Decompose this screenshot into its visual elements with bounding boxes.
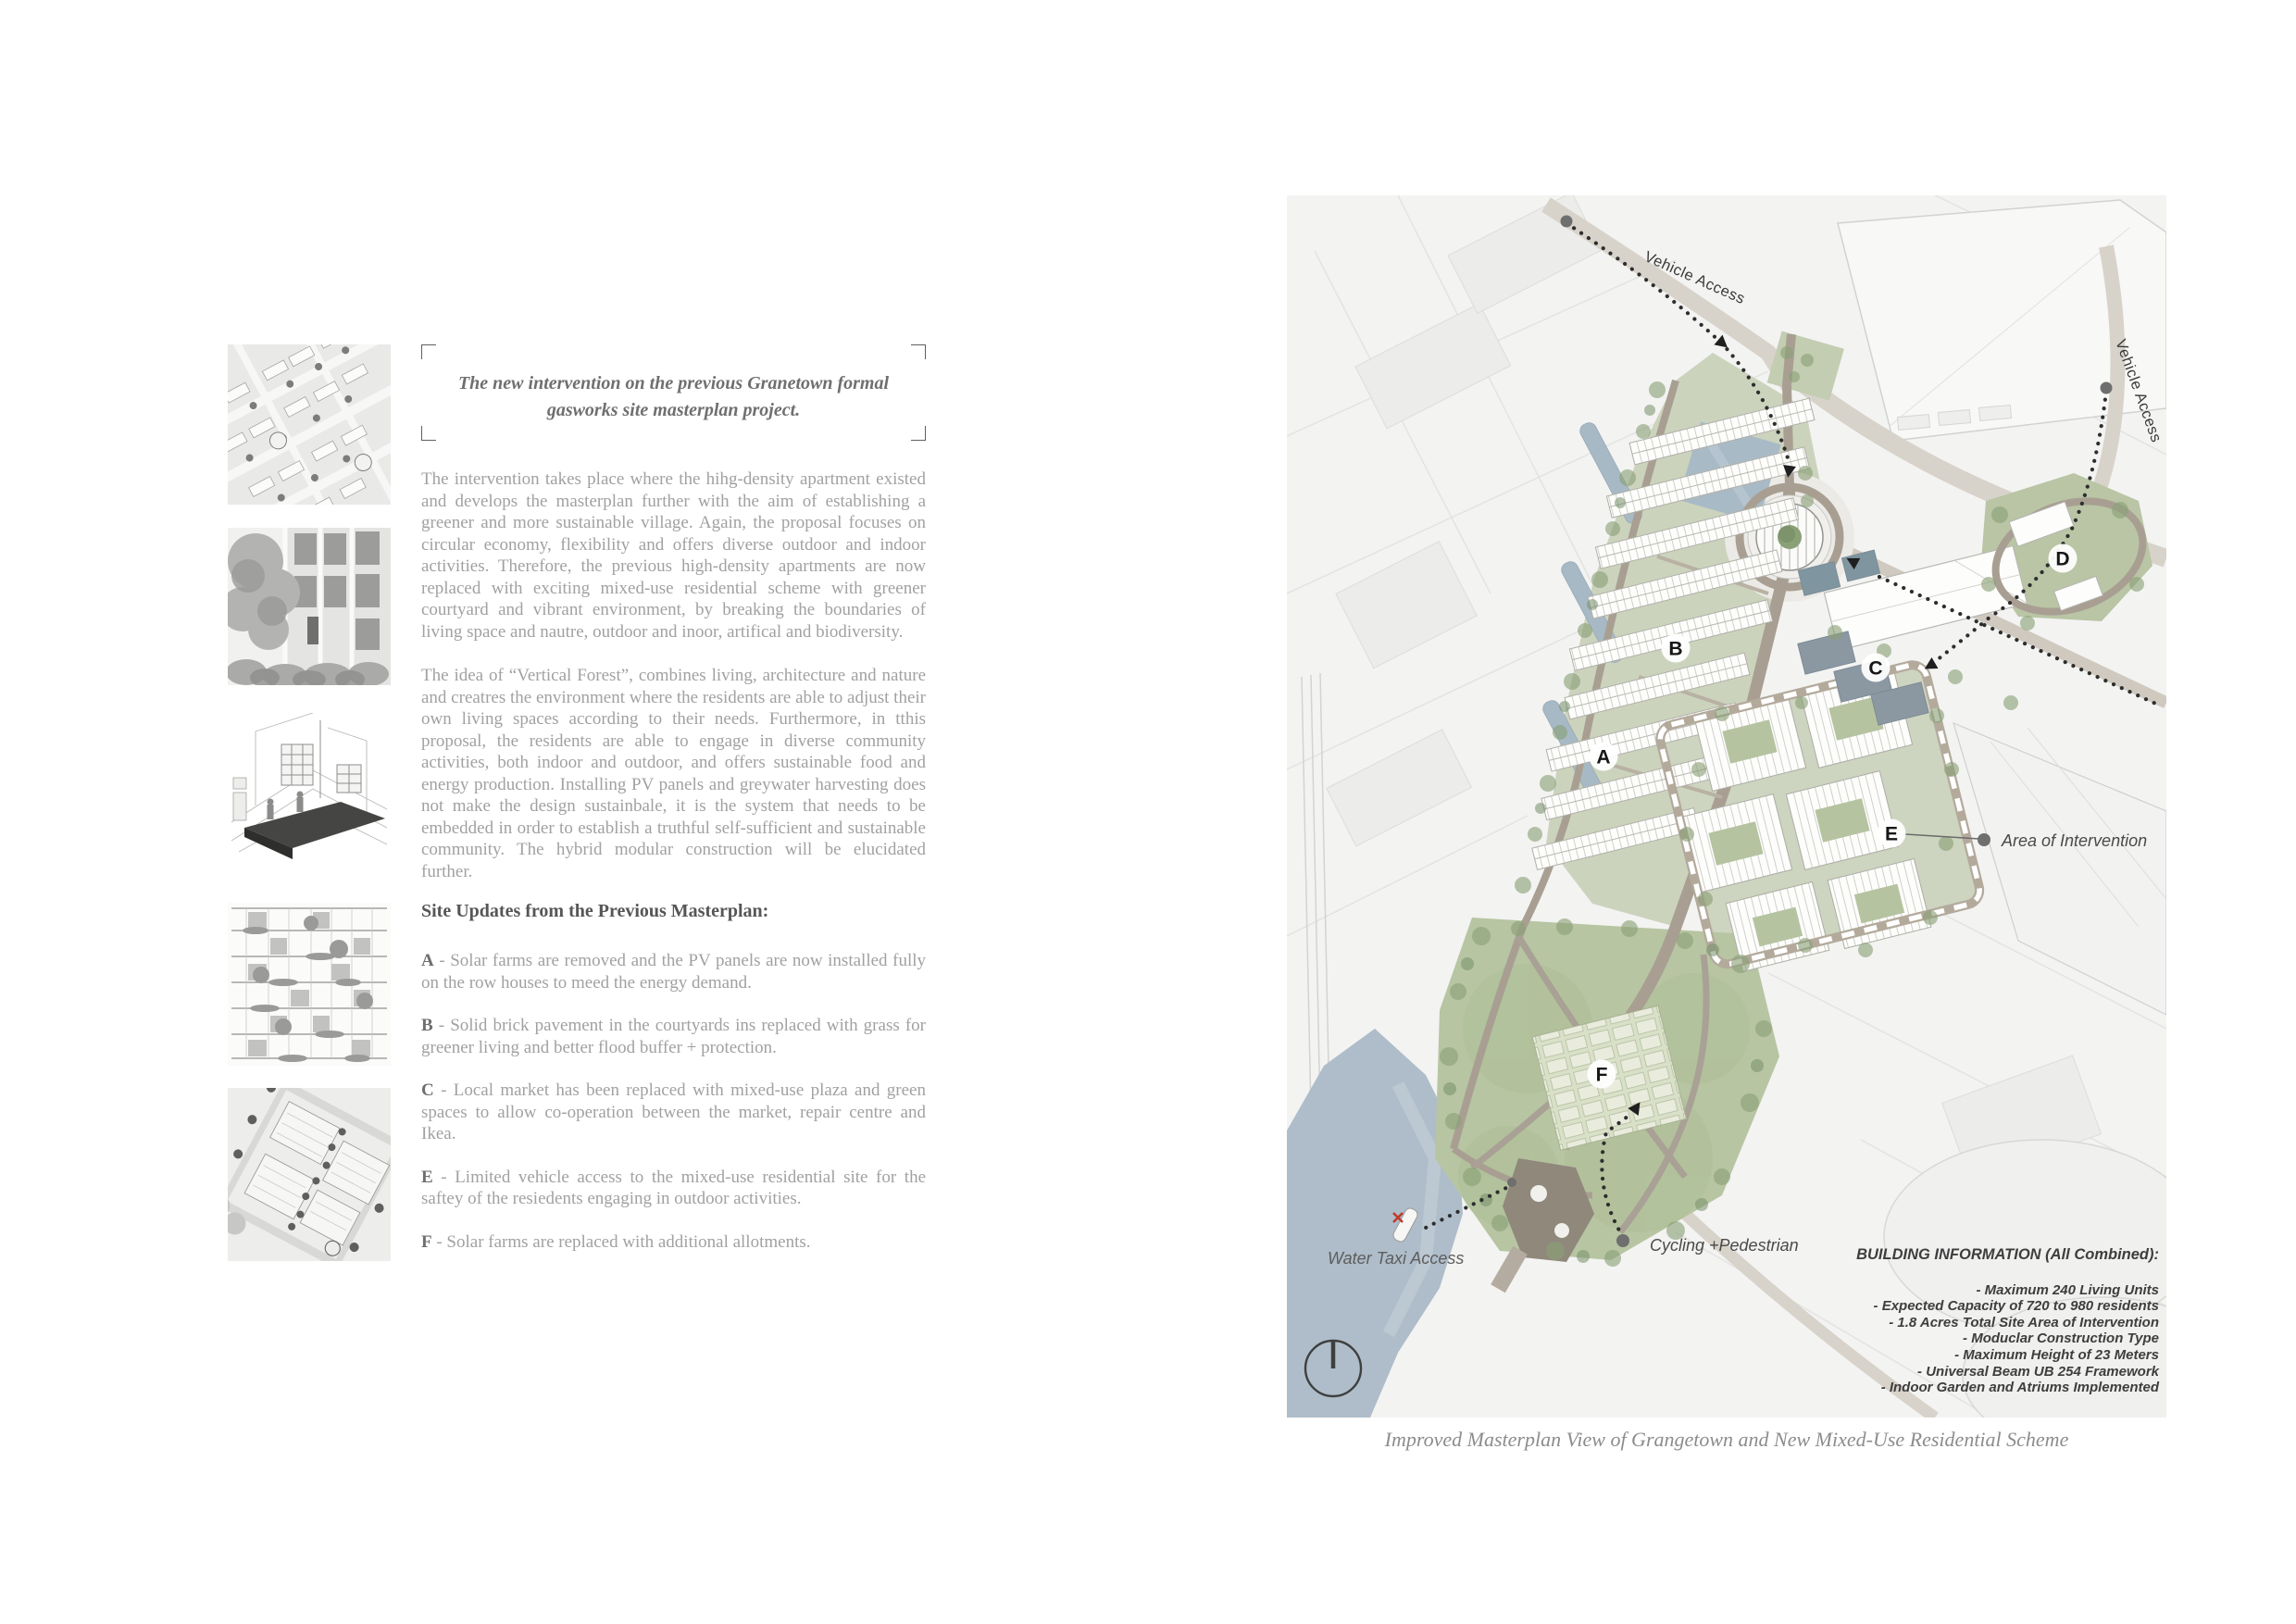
site-update-text: - Solid brick pavement in the courtyards… [421, 1016, 926, 1057]
thumbnail-construction-axonometric [228, 713, 391, 884]
building-info-line: - Expected Capacity of 720 to 980 reside… [1798, 1298, 2159, 1315]
cycling-pedestrian-label: Cycling +Pedestrian [1650, 1236, 1799, 1255]
building-info-line: - Indoor Garden and Atriums Implemented [1798, 1380, 2159, 1396]
building-info-line: - Maximum Height of 23 Meters [1798, 1347, 2159, 1364]
area-of-intervention-label: Area of Intervention [2001, 831, 2147, 850]
site-update-text: - Limited vehicle access to the mixed-us… [421, 1168, 926, 1209]
site-update-key: F [421, 1232, 432, 1252]
svg-text:A: A [1596, 747, 1610, 768]
svg-text:B: B [1668, 639, 1682, 660]
building-information-block: BUILDING INFORMATION (All Combined): - M… [1798, 1247, 2159, 1396]
site-update-item-c: C - Local market has been replaced with … [421, 1080, 926, 1145]
building-info-line: - Universal Beam UB 254 Framework [1798, 1364, 2159, 1380]
building-info-line: - Maximum 240 Living Units [1798, 1282, 2159, 1299]
site-update-key: E [421, 1168, 433, 1187]
portfolio-page: The new intervention on the previous Gra… [0, 0, 2296, 1624]
svg-text:E: E [1885, 824, 1898, 845]
thumbnail-facade-elevation [228, 903, 391, 1066]
thumbnail-courtyard-plan [228, 1088, 391, 1261]
site-update-text: - Solar farms are replaced with addition… [436, 1232, 810, 1252]
marker-d: D [2049, 544, 2078, 573]
svg-text:C: C [1868, 658, 1882, 680]
site-updates-heading: Site Updates from the Previous Masterpla… [421, 901, 926, 922]
site-update-text: - Local market has been replaced with mi… [421, 1081, 926, 1143]
building-info-line: - 1.8 Acres Total Site Area of Intervent… [1798, 1315, 2159, 1331]
thumbnail-masterplan-aerial [228, 344, 391, 505]
site-update-text: - Solar farms are removed and the PV pan… [421, 951, 926, 993]
text-column: The new intervention on the previous Gra… [421, 344, 926, 1274]
thumbnail-vertical-forest-photo [228, 528, 391, 685]
site-update-item-a: A - Solar farms are removed and the PV p… [421, 950, 926, 993]
site-update-key: A [421, 951, 434, 970]
crop-mark-top-right [911, 344, 926, 359]
map-caption: Improved Masterplan View of Grangetown a… [1287, 1428, 2166, 1452]
water-taxi-access-label: Water Taxi Access [1328, 1249, 1464, 1268]
marker-e: E [1878, 819, 1906, 848]
svg-text:D: D [2055, 549, 2069, 570]
marker-b: B [1662, 634, 1691, 663]
site-update-item-e: E - Limited vehicle access to the mixed-… [421, 1167, 926, 1210]
site-update-key: B [421, 1016, 433, 1035]
svg-text:F: F [1596, 1065, 1608, 1086]
crop-mark-bottom-right [911, 426, 926, 441]
site-update-item-f: F - Solar farms are replaced with additi… [421, 1231, 926, 1254]
marker-f: F [1588, 1060, 1616, 1089]
marker-a: A [1590, 743, 1618, 771]
intro-caption: The new intervention on the previous Gra… [434, 370, 913, 424]
paragraph-intervention: The intervention takes place where the h… [421, 468, 926, 643]
crop-mark-bottom-left [421, 426, 436, 441]
masterplan-map-image: A B C D E F Vehicle Access Vehicle Acces… [1287, 195, 2166, 1418]
building-information-title: BUILDING INFORMATION (All Combined): [1798, 1247, 2159, 1264]
caption-block: The new intervention on the previous Gra… [421, 344, 926, 441]
masterplan-map: A B C D E F Vehicle Access Vehicle Acces… [1287, 195, 2166, 1418]
paragraph-vertical-forest: The idea of “Vertical Forest”, combines … [421, 665, 926, 882]
site-update-key: C [421, 1081, 434, 1100]
building-info-line: - Moduclar Construction Type [1798, 1330, 2159, 1347]
marker-c: C [1862, 654, 1890, 682]
crop-mark-top-left [421, 344, 436, 359]
site-update-item-b: B - Solid brick pavement in the courtyar… [421, 1015, 926, 1058]
